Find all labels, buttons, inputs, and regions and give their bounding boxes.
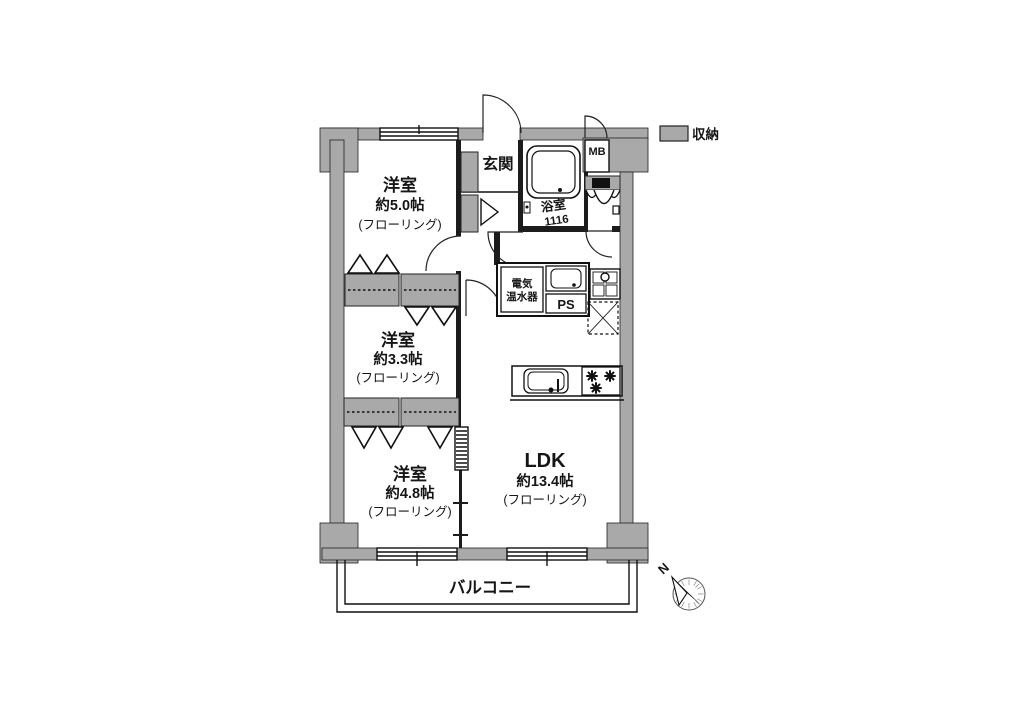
room5-label: 洋室 約5.0帖 (フローリング) bbox=[358, 175, 441, 232]
partition-hatch bbox=[455, 427, 468, 470]
svg-text:約13.4帖: 約13.4帖 bbox=[516, 472, 574, 490]
svg-text:(フローリング): (フローリング) bbox=[503, 493, 586, 507]
mb-label: MB bbox=[588, 146, 605, 158]
bathtub-icon bbox=[527, 146, 580, 198]
svg-text:洋室: 洋室 bbox=[381, 330, 415, 350]
entrance-door bbox=[483, 95, 521, 133]
ps-label: PS bbox=[557, 297, 575, 312]
folding-door-icon bbox=[352, 427, 452, 448]
heater-label-1: 電気 bbox=[512, 277, 533, 290]
stove-icon bbox=[582, 367, 620, 395]
legend-swatch bbox=[660, 126, 688, 141]
svg-text:LDK: LDK bbox=[524, 450, 566, 472]
toilet-icon bbox=[586, 190, 620, 204]
svg-text:約5.0帖: 約5.0帖 bbox=[375, 196, 425, 214]
floor-plan-drawing: 収納 N 洋室 約5.0帖 (フローリング) 洋室 約3.3帖 (フローリング)… bbox=[0, 0, 1024, 724]
room5-door bbox=[426, 236, 461, 271]
kitchen-counter bbox=[510, 366, 624, 400]
svg-text:約3.3帖: 約3.3帖 bbox=[373, 350, 423, 368]
compass-n-label: N bbox=[655, 560, 672, 577]
balcony-label: バルコニー bbox=[449, 579, 531, 597]
cistern-icon bbox=[592, 178, 610, 188]
ldk-label: LDK 約13.4帖 (フローリング) bbox=[503, 450, 586, 507]
room3-label: 洋室 約3.3帖 (フローリング) bbox=[356, 330, 439, 385]
bath-door bbox=[488, 232, 523, 267]
toilet-room bbox=[585, 176, 620, 214]
legend-storage: 収納 bbox=[660, 126, 719, 142]
legend-label: 収納 bbox=[692, 126, 719, 142]
svg-text:約4.8帖: 約4.8帖 bbox=[385, 484, 435, 502]
kitchen-sink-icon bbox=[524, 369, 568, 393]
svg-text:(フローリング): (フローリング) bbox=[358, 218, 441, 232]
svg-text:洋室: 洋室 bbox=[383, 175, 417, 195]
svg-text:洋室: 洋室 bbox=[393, 464, 427, 484]
genkan-label: 玄関 bbox=[482, 154, 513, 173]
washbasin-icon bbox=[546, 266, 586, 291]
toilet-door bbox=[586, 231, 612, 257]
heater-label-2: 温水器 bbox=[506, 290, 538, 303]
window-top bbox=[380, 125, 458, 140]
window-balcony-right bbox=[507, 548, 587, 566]
closet-band-1 bbox=[345, 255, 459, 325]
svg-text:(フローリング): (フローリング) bbox=[368, 505, 451, 519]
washer-pan-icon bbox=[590, 269, 620, 299]
paper-holder-icon bbox=[613, 206, 619, 214]
room4-label: 洋室 約4.8帖 (フローリング) bbox=[368, 464, 451, 519]
window-balcony-left bbox=[377, 548, 457, 566]
svg-text:(フローリング): (フローリング) bbox=[356, 371, 439, 385]
refrigerator-space bbox=[588, 302, 618, 334]
floor-plan-page: 収納 N 洋室 約5.0帖 (フローリング) 洋室 約3.3帖 (フローリング)… bbox=[0, 0, 1024, 724]
compass: N bbox=[655, 560, 705, 610]
bath-label: 浴室 bbox=[540, 196, 567, 214]
mirror-icon bbox=[481, 199, 498, 225]
closet-band-2 bbox=[344, 398, 459, 448]
